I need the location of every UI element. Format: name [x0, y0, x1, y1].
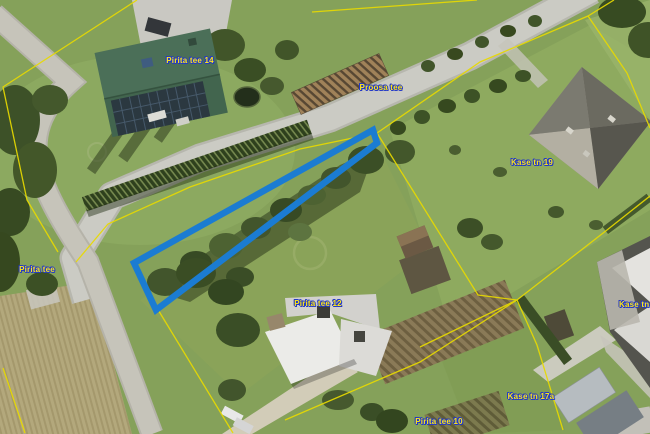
map-canvas[interactable]: Pirita tee 14 Proosa tee Kase tn 19 Piri… [0, 0, 650, 434]
aerial-imagery [0, 0, 650, 434]
